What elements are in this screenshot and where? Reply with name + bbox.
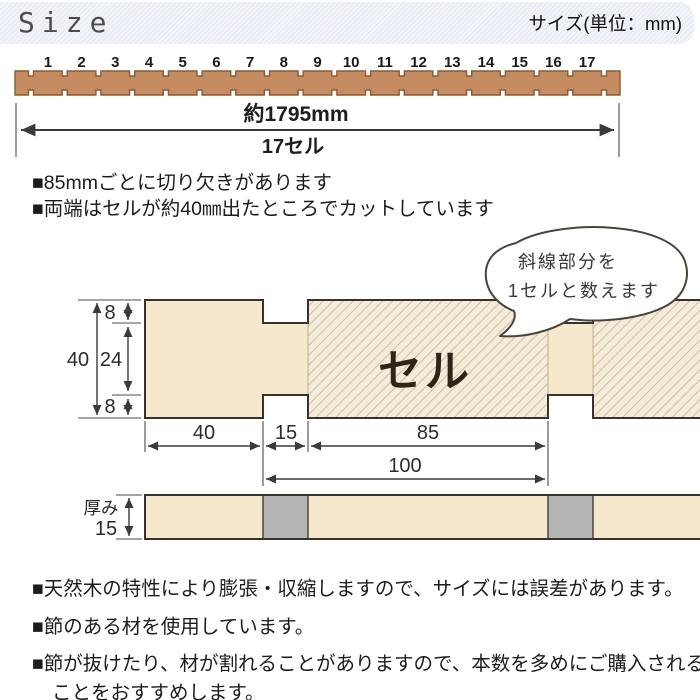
wood-strip — [15, 71, 620, 95]
ruler-cell-number: 4 — [145, 54, 154, 71]
note-wood-expansion: ■天然木の特性により膨張・収縮しますので、サイズには誤差があります。 — [32, 575, 700, 604]
note-knots: ■節のある材を使用しています。 — [32, 613, 700, 642]
dim-middle-height: 24 — [100, 349, 122, 371]
notch-block — [263, 495, 308, 539]
dim-total-height: 40 — [67, 349, 89, 371]
cell-count-label: 17セル — [262, 136, 324, 158]
cross-section: セル 40 24 8 8 40 15 85 10 — [67, 300, 700, 486]
ruler-cell-number: 15 — [511, 54, 528, 71]
ruler-cell-number: 9 — [313, 54, 321, 71]
dim-pitch: 100 — [388, 455, 421, 477]
side-view: 厚み 15 — [84, 495, 700, 540]
ruler-cell-number: 1 — [44, 54, 52, 71]
ruler-cell-number: 17 — [579, 54, 596, 71]
ruler-cell-number: 5 — [179, 54, 187, 71]
dim-cell-width: 85 — [417, 422, 439, 444]
notch-block — [548, 495, 593, 539]
cell-label: セル — [378, 347, 472, 396]
dim-notch-width: 15 — [275, 422, 297, 444]
size-diagram-page: Size サイズ(単位：mm) ■85mmごとに切り欠きがあります ■両端はセル… — [0, 0, 700, 700]
ruler-cell-number: 6 — [212, 54, 220, 71]
total-length-label: 約1795mm — [243, 102, 348, 126]
dim-notch-depth-top: 8 — [104, 302, 115, 324]
bubble-line2: 1セルと数えます — [508, 281, 660, 301]
ruler-cell-number: 14 — [478, 54, 495, 71]
bubble-line1: 斜線部分を — [518, 252, 618, 272]
ruler-cell-number: 3 — [111, 54, 119, 71]
ruler-cell-number: 10 — [343, 54, 360, 71]
ruler-cell-number: 12 — [410, 54, 427, 71]
dim-notch-depth-bottom: 8 — [104, 396, 115, 418]
ruler-numbers: 1234567891011121314151617 — [44, 54, 596, 71]
dim-end-length: 40 — [193, 422, 215, 444]
side-bar — [145, 495, 700, 539]
ruler: 1234567891011121314151617 約1795mm 17セル — [15, 54, 620, 158]
thickness-label: 厚み — [84, 498, 119, 518]
note-buy-extra: ■節が抜けたり、材が割れることがありますので、本数を多めにご購入されることをおす… — [32, 650, 700, 700]
ruler-cell-number: 2 — [77, 54, 85, 71]
ruler-cell-number: 13 — [444, 54, 461, 71]
ruler-cell-number: 7 — [246, 54, 254, 71]
thickness-value: 15 — [95, 518, 117, 540]
ruler-cell-number: 8 — [280, 54, 288, 71]
ruler-cell-number: 11 — [377, 54, 393, 71]
ruler-cell-number: 16 — [545, 54, 562, 71]
